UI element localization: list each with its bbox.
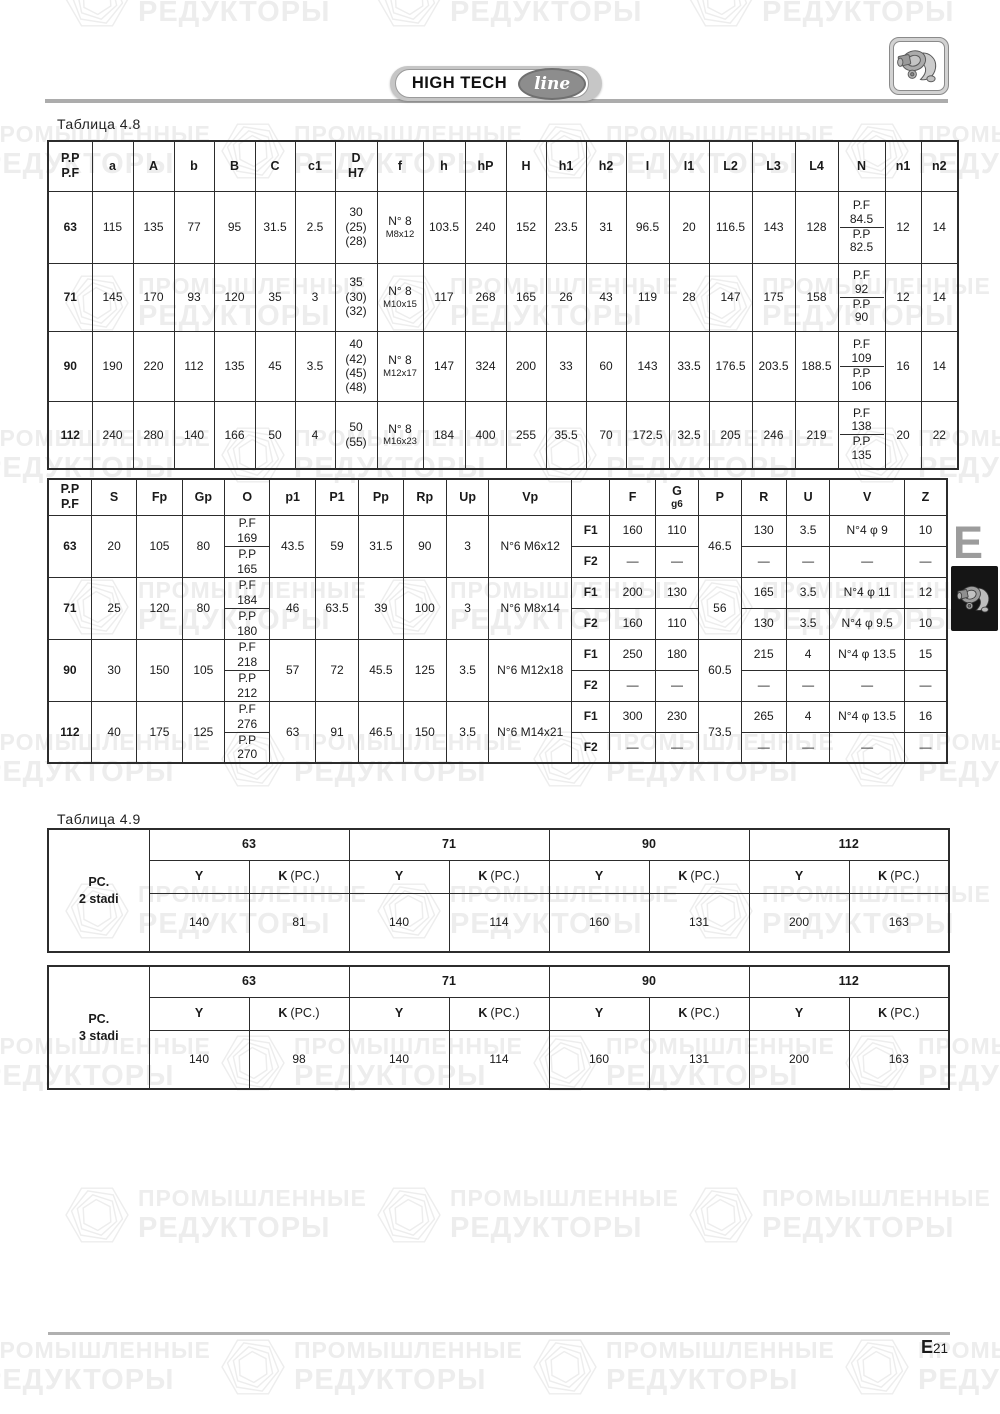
cell: 188.5 <box>795 331 838 401</box>
col-header: N <box>838 141 885 191</box>
cell: N°6 M12x18 <box>489 639 572 701</box>
cell: 200 <box>506 331 546 401</box>
col-header: P <box>699 479 741 515</box>
watermark: ПРОМЫШЛЕННЫЕРЕДУКТОРЫ <box>688 0 991 32</box>
cell: 32.5 <box>669 401 709 469</box>
table-row: 112 40 175 125 P.F 276 63 91 46.5 150 3.… <box>48 701 947 732</box>
cell: 160 <box>610 515 655 546</box>
logo-line-badge: line <box>518 68 586 100</box>
cell: 30 (25) (28) <box>335 191 377 263</box>
cell: 33 <box>546 331 586 401</box>
col-header: P.P P.F <box>48 479 91 515</box>
table-header-row: PC.2 stadi 63 71 90 112 <box>48 829 949 860</box>
logo-line-text: line <box>534 74 570 94</box>
cell: 165 <box>741 577 786 608</box>
cell: 130 <box>741 515 786 546</box>
col-header: I1 <box>669 141 709 191</box>
table-header-row: PC.3 stadi 63 71 90 112 <box>48 966 949 997</box>
cell: P.F 84.5P.P 82.5 <box>838 191 885 263</box>
cell: 15 <box>904 639 947 670</box>
size-cell: 71 <box>48 263 92 331</box>
cell: 190 <box>92 331 133 401</box>
cell: 43.5 <box>270 515 315 577</box>
cell: 72 <box>315 639 358 701</box>
cell: 16 <box>885 331 921 401</box>
cell: 163 <box>849 1030 949 1089</box>
cell: 150 <box>403 701 446 763</box>
watermark: ПРОМЫШЛЕННЫЕРЕДУКТОРЫ <box>688 1182 991 1248</box>
cell: 4 <box>295 401 335 469</box>
cell: N°6 M14x21 <box>489 701 572 763</box>
cell: 80 <box>182 577 224 639</box>
cell: 60 <box>586 331 626 401</box>
cell: 400 <box>465 401 506 469</box>
size-cell: 63 <box>48 515 91 577</box>
col-header: a <box>92 141 133 191</box>
cell: 200 <box>749 893 849 952</box>
cell: 63 <box>270 701 315 763</box>
size-header: 90 <box>549 966 749 997</box>
col-header: D H7 <box>335 141 377 191</box>
cell: 26 <box>546 263 586 331</box>
size-header: 71 <box>349 829 549 860</box>
cell: 96.5 <box>626 191 669 263</box>
cell: 280 <box>133 401 174 469</box>
cell: 110 <box>655 608 698 639</box>
table-header-row: P.P P.F a A b B C c1 D H7 f h hP H h1 h2… <box>48 141 958 191</box>
col-header: Y <box>549 860 649 893</box>
cell: 300 <box>610 701 655 732</box>
size-cell: 71 <box>48 577 91 639</box>
table-4-8-dimensions: P.P P.F a A b B C c1 D H7 f h hP H h1 h2… <box>47 140 959 470</box>
cell: 230 <box>655 701 698 732</box>
size-cell: 90 <box>48 331 92 401</box>
footer-rule <box>48 1332 950 1335</box>
cell: 80 <box>182 515 224 577</box>
size-header: 63 <box>149 966 349 997</box>
cell: — <box>830 732 905 763</box>
table-row: 112 240 280 140 166 50 4 50 (55) N° 8M16… <box>48 401 958 469</box>
cell: 73.5 <box>699 701 741 763</box>
cell: 170 <box>133 263 174 331</box>
cell: — <box>741 732 786 763</box>
flange-label-cell: F1 <box>572 577 610 608</box>
cell: 46.5 <box>359 701 403 763</box>
col-header: K(PC.) <box>849 860 949 893</box>
cell: 119 <box>626 263 669 331</box>
cell: P.P 165 <box>225 546 270 577</box>
cell: 128 <box>795 191 838 263</box>
hightech-logo-inner: HIGH TECH line <box>395 69 589 98</box>
cell: 131 <box>649 1030 749 1089</box>
cell: 14 <box>921 191 958 263</box>
cell: 265 <box>741 701 786 732</box>
cell: N°4 φ 13.5 <box>830 701 905 732</box>
cell: 120 <box>137 577 182 639</box>
col-header: K(PC.) <box>449 997 549 1030</box>
col-header: K(PC.) <box>649 860 749 893</box>
watermark: ПРОМЫШЛЕННЫЕРЕДУКТОРЫ <box>220 1334 523 1400</box>
col-header: Y <box>749 860 849 893</box>
gearbox-photo-frame <box>889 37 949 95</box>
page-number-letter: E <box>921 1337 933 1357</box>
watermark: ПРОМЫШЛЕННЫЕРЕДУКТОРЫ <box>532 1334 835 1400</box>
cell: 140 <box>349 893 449 952</box>
cell: P.F 218 <box>225 639 270 670</box>
col-header: Vp <box>489 479 572 515</box>
table-4-9-2stadi: PC.2 stadi 63 71 90 112 Y K(PC.) Y K(PC.… <box>47 828 950 953</box>
cell: 33.5 <box>669 331 709 401</box>
cell: 81 <box>249 893 349 952</box>
cell: 205 <box>709 401 752 469</box>
cell: — <box>786 732 829 763</box>
col-header: c1 <box>295 141 335 191</box>
cell: 63.5 <box>315 577 358 639</box>
table-row: 63 115 135 77 95 31.5 2.5 30 (25) (28) N… <box>48 191 958 263</box>
cell: 16 <box>904 701 947 732</box>
cell: 140 <box>149 1030 249 1089</box>
size-header: 63 <box>149 829 349 860</box>
watermark: ПРОМЫШЛЕННЫЕРЕДУКТОРЫ <box>0 1334 211 1400</box>
col-header: V <box>830 479 905 515</box>
cell: N°4 φ 9 <box>830 515 905 546</box>
gearbox-icon <box>893 41 945 91</box>
cell: 25 <box>91 577 136 639</box>
table-row: 90 30 150 105 P.F 218 57 72 45.5 125 3.5… <box>48 639 947 670</box>
col-header: B <box>214 141 255 191</box>
cell: 35 (30) (32) <box>335 263 377 331</box>
col-header: O <box>225 479 270 515</box>
cell: P.F 138P.P 135 <box>838 401 885 469</box>
flange-label-cell: F2 <box>572 670 610 701</box>
col-header: Y <box>149 997 249 1030</box>
cell: 35.5 <box>546 401 586 469</box>
cell: 255 <box>506 401 546 469</box>
cell: N° 8M16x23 <box>377 401 423 469</box>
col-header: h <box>423 141 465 191</box>
cell: 152 <box>506 191 546 263</box>
cell: 160 <box>549 893 649 952</box>
cell: 200 <box>749 1030 849 1089</box>
col-header: p1 <box>270 479 315 515</box>
page-number-digits: 21 <box>933 1341 948 1356</box>
gearbox-icon-dark <box>955 581 995 617</box>
cell: 143 <box>626 331 669 401</box>
cell: 184 <box>423 401 465 469</box>
cell: 57 <box>270 639 315 701</box>
cell: 12 <box>904 577 947 608</box>
cell: 3.5 <box>786 577 829 608</box>
cell: 70 <box>586 401 626 469</box>
cell: 31 <box>586 191 626 263</box>
cell: 175 <box>752 263 795 331</box>
col-header: K(PC.) <box>649 997 749 1030</box>
flange-label-cell: F2 <box>572 546 610 577</box>
cell: 145 <box>92 263 133 331</box>
cell: 20 <box>91 515 136 577</box>
cell: — <box>655 732 698 763</box>
cell: — <box>904 546 947 577</box>
cell: 140 <box>149 893 249 952</box>
cell: 90 <box>403 515 446 577</box>
hightech-logo: HIGH TECH line <box>390 66 602 101</box>
cell: 125 <box>403 639 446 701</box>
cell: 112 <box>174 331 214 401</box>
cell: 130 <box>741 608 786 639</box>
col-header: K(PC.) <box>849 997 949 1030</box>
page-number: E21 <box>921 1337 948 1358</box>
cell: 117 <box>423 263 465 331</box>
col-header: L2 <box>709 141 752 191</box>
cell: 160 <box>549 1030 649 1089</box>
cell: 60.5 <box>699 639 741 701</box>
cell: — <box>830 670 905 701</box>
table-4-8-mounting: P.P P.F S Fp Gp O p1 P1 Pp Rp Up Vp F Gg… <box>47 478 948 764</box>
cell: 160 <box>610 608 655 639</box>
cell: 12 <box>885 191 921 263</box>
cell: 135 <box>133 191 174 263</box>
size-cell: 90 <box>48 639 91 701</box>
flange-label-cell: F1 <box>572 639 610 670</box>
cell: — <box>610 670 655 701</box>
size-header: 112 <box>749 966 949 997</box>
col-header: L3 <box>752 141 795 191</box>
cell: 98 <box>249 1030 349 1089</box>
cell: 250 <box>610 639 655 670</box>
cell: 105 <box>182 639 224 701</box>
cell: 165 <box>506 263 546 331</box>
cell: N° 8M12x17 <box>377 331 423 401</box>
cell: 219 <box>795 401 838 469</box>
cell: 23.5 <box>546 191 586 263</box>
section-tab-letter: E <box>953 520 983 565</box>
col-header: Gg6 <box>655 479 698 515</box>
cell: 50 (55) <box>335 401 377 469</box>
table-4-9-3stadi: PC.3 stadi 63 71 90 112 Y K(PC.) Y K(PC.… <box>47 965 950 1090</box>
col-header: Up <box>446 479 488 515</box>
size-header: 71 <box>349 966 549 997</box>
cell: 12 <box>885 263 921 331</box>
cell: 158 <box>795 263 838 331</box>
cell: 180 <box>655 639 698 670</box>
col-header: A <box>133 141 174 191</box>
cell: N°4 φ 13.5 <box>830 639 905 670</box>
cell: P.P 180 <box>225 608 270 639</box>
cell: 100 <box>403 577 446 639</box>
table-subheader-row: Y K(PC.) Y K(PC.) Y K(PC.) Y K(PC.) <box>48 997 949 1030</box>
col-header: Gp <box>182 479 224 515</box>
cell: — <box>741 670 786 701</box>
flange-label-cell: F1 <box>572 701 610 732</box>
cell: 77 <box>174 191 214 263</box>
cell: N°6 M6x12 <box>489 515 572 577</box>
cell: N° 8M10x15 <box>377 263 423 331</box>
cell: — <box>655 670 698 701</box>
col-header: h2 <box>586 141 626 191</box>
cell: 147 <box>423 331 465 401</box>
cell: 140 <box>174 401 214 469</box>
cell: P.F 169 <box>225 515 270 546</box>
cell: 150 <box>137 639 182 701</box>
col-header: I <box>626 141 669 191</box>
col-header: Y <box>349 860 449 893</box>
cell: 166 <box>214 401 255 469</box>
table-header-row: P.P P.F S Fp Gp O p1 P1 Pp Rp Up Vp F Gg… <box>48 479 947 515</box>
cell: P.P 212 <box>225 670 270 701</box>
cell: 114 <box>449 1030 549 1089</box>
cell: P.F 276 <box>225 701 270 732</box>
size-header: 90 <box>549 829 749 860</box>
cell: — <box>830 546 905 577</box>
size-cell: 112 <box>48 701 91 763</box>
size-cell: 112 <box>48 401 92 469</box>
cell: 130 <box>655 577 698 608</box>
flange-label-cell: F2 <box>572 732 610 763</box>
cell: 3.5 <box>446 639 488 701</box>
cell: 163 <box>849 893 949 952</box>
table-row: 90 190 220 112 135 45 3.5 40 (42) (45) (… <box>48 331 958 401</box>
col-header: b <box>174 141 214 191</box>
col-header: Y <box>749 997 849 1030</box>
col-header: K(PC.) <box>449 860 549 893</box>
flange-label-cell: F1 <box>572 515 610 546</box>
cell: 95 <box>214 191 255 263</box>
cell: 10 <box>904 608 947 639</box>
cell: 39 <box>359 577 403 639</box>
col-header: Y <box>349 997 449 1030</box>
cell: 31.5 <box>255 191 295 263</box>
cell: — <box>904 670 947 701</box>
flange-label-cell: F2 <box>572 608 610 639</box>
stage-label-cell: PC.2 stadi <box>48 829 149 952</box>
cell: 114 <box>449 893 549 952</box>
table-row: 63 20 105 80 P.F 169 43.5 59 31.5 90 3 N… <box>48 515 947 546</box>
col-header: H <box>506 141 546 191</box>
cell: 120 <box>214 263 255 331</box>
cell: 140 <box>349 1030 449 1089</box>
cell: 46.5 <box>699 515 741 577</box>
cell: P.F 92P.P 90 <box>838 263 885 331</box>
logo-title: HIGH TECH <box>412 74 507 93</box>
size-header: 112 <box>749 829 949 860</box>
cell: 93 <box>174 263 214 331</box>
cell: 40 <box>91 701 136 763</box>
cell: 91 <box>315 701 358 763</box>
col-header: P1 <box>315 479 358 515</box>
col-header: f <box>377 141 423 191</box>
cell: 45 <box>255 331 295 401</box>
cell: 3.5 <box>786 608 829 639</box>
cell: P.F 184 <box>225 577 270 608</box>
cell: 46 <box>270 577 315 639</box>
cell: 220 <box>133 331 174 401</box>
cell: 105 <box>137 515 182 577</box>
cell: 147 <box>709 263 752 331</box>
cell: 131 <box>649 893 749 952</box>
col-header: S <box>91 479 136 515</box>
cell: — <box>904 732 947 763</box>
col-header: n2 <box>921 141 958 191</box>
cell: 175 <box>137 701 182 763</box>
catalog-page: ПРОМЫШЛЕННЫЕРЕДУКТОРЫПРОМЫШЛЕННЫЕРЕДУКТО… <box>0 0 1000 1414</box>
cell: 215 <box>741 639 786 670</box>
table-row: 71 145 170 93 120 35 3 35 (30) (32) N° 8… <box>48 263 958 331</box>
cell: 203.5 <box>752 331 795 401</box>
cell: 268 <box>465 263 506 331</box>
cell: 240 <box>465 191 506 263</box>
cell: 4 <box>786 701 829 732</box>
table-4-9-caption: Таблица 4.9 <box>57 811 141 827</box>
cell: 110 <box>655 515 698 546</box>
cell: 246 <box>752 401 795 469</box>
col-header: F <box>610 479 655 515</box>
cell: 3.5 <box>446 701 488 763</box>
cell: 50 <box>255 401 295 469</box>
table-row: 71 25 120 80 P.F 184 46 63.5 39 100 3 N°… <box>48 577 947 608</box>
watermark: ПРОМЫШЛЕННЫЕРЕДУКТОРЫ <box>376 1182 679 1248</box>
cell: 2.5 <box>295 191 335 263</box>
col-header: hP <box>465 141 506 191</box>
cell: 143 <box>752 191 795 263</box>
cell: 35 <box>255 263 295 331</box>
cell: — <box>655 546 698 577</box>
cell: 4 <box>786 639 829 670</box>
table-4-8-caption: Таблица 4.8 <box>57 116 141 132</box>
cell: 43 <box>586 263 626 331</box>
cell: — <box>786 546 829 577</box>
cell: — <box>786 670 829 701</box>
col-header: L4 <box>795 141 838 191</box>
cell: N°6 M8x14 <box>489 577 572 639</box>
cell: 176.5 <box>709 331 752 401</box>
cell: — <box>741 546 786 577</box>
cell: 10 <box>904 515 947 546</box>
col-header: K(PC.) <box>249 860 349 893</box>
cell: N° 8M8x12 <box>377 191 423 263</box>
col-header: n1 <box>885 141 921 191</box>
cell: 3.5 <box>786 515 829 546</box>
col-header: h1 <box>546 141 586 191</box>
cell: 115 <box>92 191 133 263</box>
col-header: Rp <box>403 479 446 515</box>
cell: 3.5 <box>295 331 335 401</box>
cell: 135 <box>214 331 255 401</box>
watermark: ПРОМЫШЛЕННЫЕРЕДУКТОРЫ <box>64 0 367 32</box>
cell: 14 <box>921 263 958 331</box>
col-header: C <box>255 141 295 191</box>
watermark: ПРОМЫШЛЕННЫЕРЕДУКТОРЫ <box>376 0 679 32</box>
col-header: P.P P.F <box>48 141 92 191</box>
size-cell: 63 <box>48 191 92 263</box>
cell: 30 <box>91 639 136 701</box>
cell: 20 <box>669 191 709 263</box>
cell: 31.5 <box>359 515 403 577</box>
col-header <box>572 479 610 515</box>
stage-label-cell: PC.3 stadi <box>48 966 149 1089</box>
cell: N°4 φ 9.5 <box>830 608 905 639</box>
cell: 103.5 <box>423 191 465 263</box>
cell: 3 <box>446 515 488 577</box>
col-header: Z <box>904 479 947 515</box>
col-header: U <box>786 479 829 515</box>
cell: 22 <box>921 401 958 469</box>
cell: — <box>610 732 655 763</box>
cell: 28 <box>669 263 709 331</box>
table-subheader-row: Y K(PC.) Y K(PC.) Y K(PC.) Y K(PC.) <box>48 860 949 893</box>
cell: 240 <box>92 401 133 469</box>
cell: 200 <box>610 577 655 608</box>
col-header: Y <box>549 997 649 1030</box>
